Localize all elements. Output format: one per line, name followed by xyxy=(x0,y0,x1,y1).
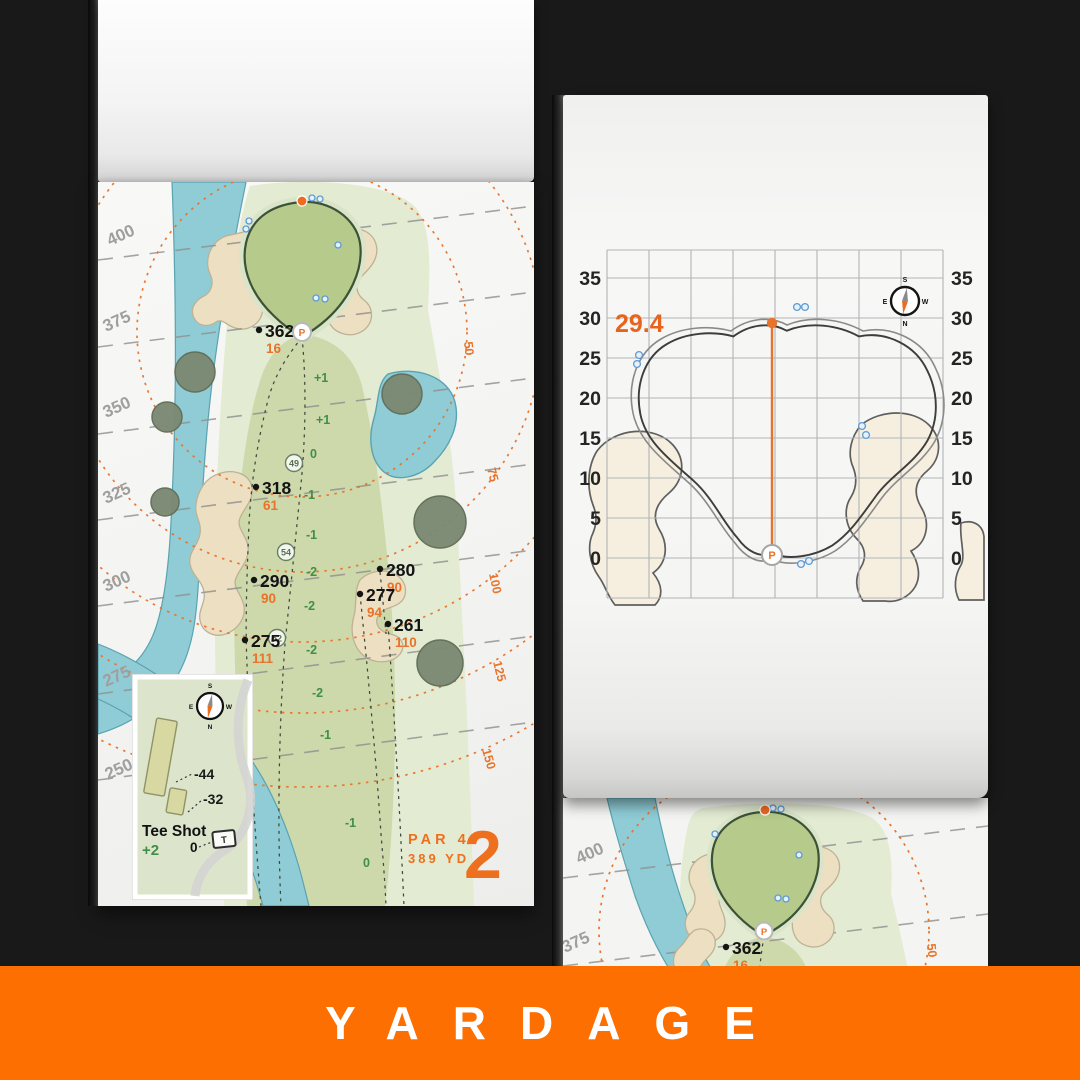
yardline-label: 325 xyxy=(100,479,134,508)
yardline-label: 400 xyxy=(573,839,607,868)
flag-dot xyxy=(760,805,770,815)
tee-distance-front: -32 xyxy=(203,791,223,807)
compass-icon: S N W E xyxy=(883,277,929,328)
arc-label: 125 xyxy=(490,659,509,683)
right-booklet: P 362 16 400 375 50 xyxy=(552,95,988,990)
yardline-labels: 400 375 xyxy=(563,839,607,957)
bunkers xyxy=(589,413,984,605)
lay-value: -1 xyxy=(304,488,315,502)
axis-tick: 30 xyxy=(951,308,973,330)
axis-tick: 30 xyxy=(579,308,601,330)
carry-label: 277 xyxy=(366,585,395,605)
hole-number: 2 xyxy=(464,817,502,893)
arc-label: 75 xyxy=(484,466,501,483)
hole-map: 49 54 52 +1 +1 0 -1 -1 -2 -2 -2 -2 xyxy=(98,182,534,906)
yardline-label: 300 xyxy=(100,567,134,596)
yardage-banner-label: YARDAGE xyxy=(291,996,789,1050)
inset-origin: 0 xyxy=(190,840,198,855)
carry-label: 318 xyxy=(262,478,291,498)
lay-value: +1 xyxy=(314,371,328,385)
front-label: 111 xyxy=(252,651,274,666)
compass-n: N xyxy=(902,321,907,328)
lay-value: 0 xyxy=(363,856,370,870)
tee-distance-back: -44 xyxy=(194,766,214,782)
green-depth-value: 29.4 xyxy=(615,310,664,338)
compass-s: S xyxy=(208,683,213,690)
yardline-label: 250 xyxy=(102,755,136,784)
compass-e: E xyxy=(883,299,888,306)
carry-label: 362 xyxy=(732,938,761,958)
inset-title: Tee Shot xyxy=(142,823,206,840)
flag-dot xyxy=(297,196,307,206)
carry-label: 362 xyxy=(265,321,294,341)
axis-tick: 20 xyxy=(579,388,601,410)
pin-icon: P xyxy=(762,545,782,565)
pin-icon: P xyxy=(293,323,311,341)
pin-label: P xyxy=(768,550,775,562)
axis-tick: 5 xyxy=(590,508,601,530)
next-hole-page: P 362 16 400 375 50 xyxy=(563,798,988,990)
pin-label: P xyxy=(761,927,768,938)
lay-value: -1 xyxy=(345,816,356,830)
green-depth-chart: P 35 30 25 20 15 10 5 0 35 30 25 xyxy=(563,95,988,798)
lay-value: 0 xyxy=(310,447,317,461)
green-detail-page: P 35 30 25 20 15 10 5 0 35 30 25 xyxy=(563,95,988,798)
lay-value: -1 xyxy=(306,528,317,542)
left-booklet: 49 54 52 +1 +1 0 -1 -1 -2 -2 -2 -2 xyxy=(88,0,534,906)
circled-value: 54 xyxy=(281,548,291,558)
yardline-label: 375 xyxy=(100,307,134,336)
pin-icon: P xyxy=(756,923,773,940)
yardage-banner: YARDAGE xyxy=(0,966,1080,1080)
compass-w: W xyxy=(922,299,929,306)
compass-e: E xyxy=(189,704,194,711)
next-hole-map: P 362 16 400 375 50 xyxy=(563,798,988,990)
carry-label: 261 xyxy=(394,615,423,635)
front-label: 110 xyxy=(395,635,417,650)
depth-measure xyxy=(767,318,777,555)
yardline-label: 375 xyxy=(563,928,593,957)
lay-value: -1 xyxy=(320,728,331,742)
arc-label: 100 xyxy=(486,572,504,595)
axis-tick: 20 xyxy=(951,388,973,410)
front-label: 94 xyxy=(367,605,383,620)
axis-tick: 15 xyxy=(579,428,601,450)
photo-background: 49 54 52 +1 +1 0 -1 -1 -2 -2 -2 -2 xyxy=(0,0,1080,1080)
yardline-label: 400 xyxy=(104,221,138,250)
axis-tick: 15 xyxy=(951,428,973,450)
axis-tick: 5 xyxy=(951,508,962,530)
lay-value: +1 xyxy=(316,413,330,427)
yardage-label: 389 YD xyxy=(408,851,469,866)
lay-value: -2 xyxy=(306,565,317,579)
par-label: PAR 4 xyxy=(408,832,470,848)
arc-label: 50 xyxy=(461,341,476,356)
lay-value: -2 xyxy=(306,643,317,657)
axis-tick: 0 xyxy=(590,548,601,570)
axis-tick: 0 xyxy=(951,548,962,570)
flipped-blank-page xyxy=(98,0,534,182)
tee-shot-inset: -44 -32 Tee Shot +2 0 T S N xyxy=(133,675,253,900)
axis-tick: 35 xyxy=(579,268,601,290)
axis-ticks-left: 35 30 25 20 15 10 5 0 xyxy=(579,268,601,570)
front-label: 90 xyxy=(261,591,276,606)
arc-label: 50 xyxy=(924,943,939,958)
axis-tick: 10 xyxy=(951,468,973,490)
axis-tick: 25 xyxy=(951,348,973,370)
axis-tick: 10 xyxy=(579,468,601,490)
pin-label: P xyxy=(299,328,306,339)
axis-tick: 35 xyxy=(951,268,973,290)
hole-map-page: 49 54 52 +1 +1 0 -1 -1 -2 -2 -2 -2 xyxy=(98,182,534,906)
circled-value: 49 xyxy=(289,459,299,469)
yardline-label: 350 xyxy=(100,393,134,422)
carry-label: 280 xyxy=(386,560,415,580)
compass-w: W xyxy=(226,704,233,711)
lay-value: -2 xyxy=(304,599,315,613)
compass-s: S xyxy=(903,277,908,284)
axis-tick: 25 xyxy=(579,348,601,370)
front-label: 61 xyxy=(263,498,279,513)
tee-marker-icon: T xyxy=(212,830,236,848)
arc-label: 150 xyxy=(479,747,498,771)
carry-label: 275 xyxy=(251,631,280,651)
inset-elevation: +2 xyxy=(142,842,159,859)
front-label: 16 xyxy=(266,341,282,356)
lay-value: -2 xyxy=(312,686,323,700)
depth-dot xyxy=(767,318,777,328)
carry-label: 290 xyxy=(260,571,289,591)
compass-n: N xyxy=(208,724,213,731)
